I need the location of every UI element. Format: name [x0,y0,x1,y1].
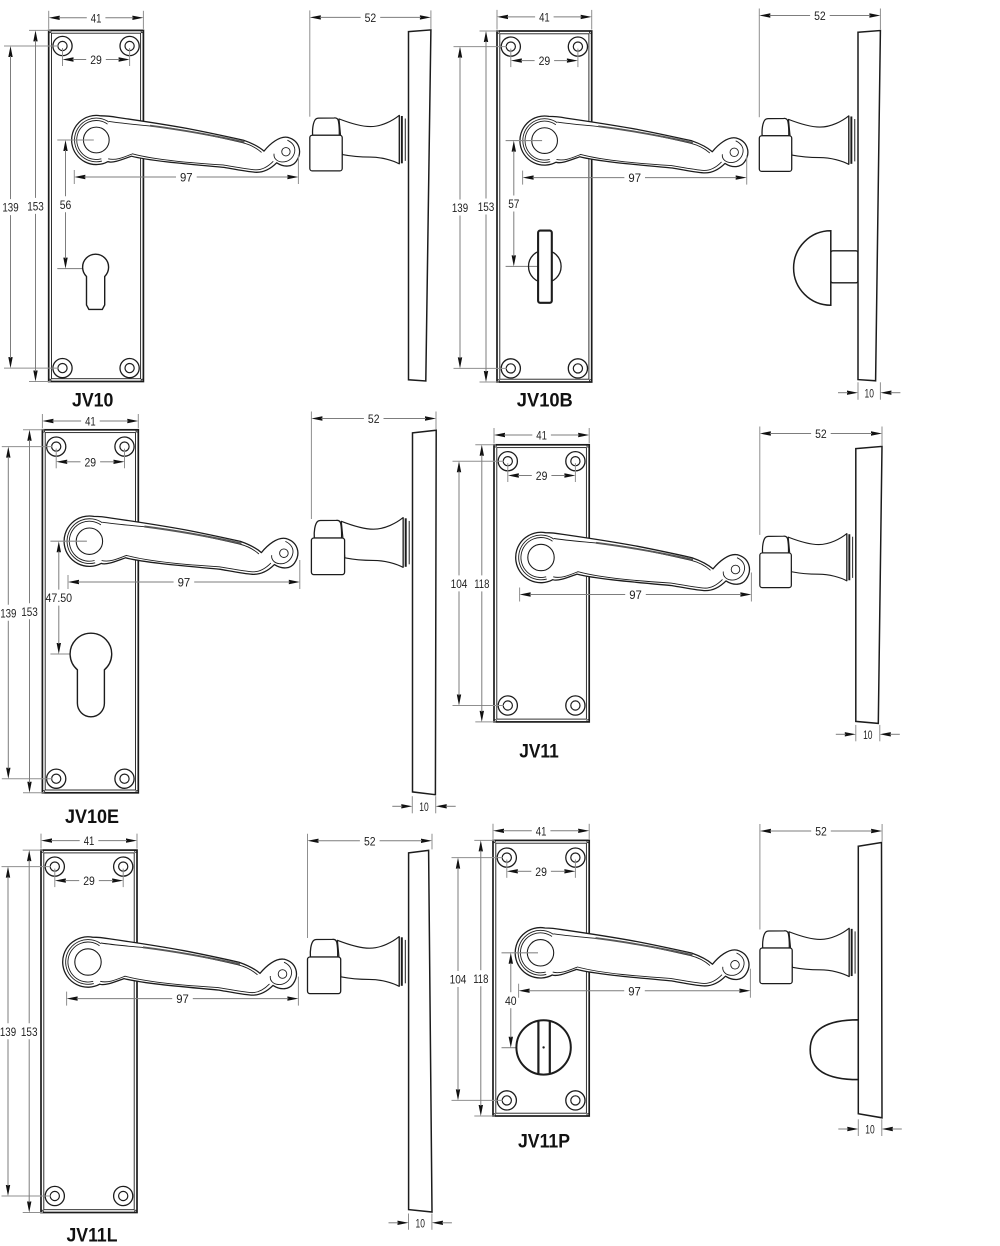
svg-text:97: 97 [178,576,191,590]
svg-text:153: 153 [21,605,38,619]
svg-text:52: 52 [815,427,827,441]
svg-text:97: 97 [176,992,189,1006]
svg-text:41: 41 [539,11,550,25]
svg-text:29: 29 [83,874,95,888]
svg-text:41: 41 [84,834,95,848]
svg-text:41: 41 [536,824,547,838]
svg-text:29: 29 [536,469,548,483]
svg-text:139: 139 [0,1025,16,1039]
svg-text:52: 52 [368,412,380,426]
svg-text:52: 52 [365,11,377,25]
svg-text:JV11L: JV11L [67,1226,118,1246]
svg-text:52: 52 [364,834,376,848]
svg-text:41: 41 [85,415,96,429]
svg-text:JV11P: JV11P [518,1131,570,1152]
svg-text:JV10E: JV10E [65,807,119,828]
svg-text:52: 52 [814,9,826,23]
svg-text:57: 57 [508,197,519,211]
svg-text:29: 29 [90,53,102,67]
svg-text:10: 10 [865,1123,875,1137]
svg-text:10: 10 [419,800,429,814]
svg-text:JV10B: JV10B [517,390,573,411]
svg-text:29: 29 [535,865,547,879]
svg-text:118: 118 [474,577,489,591]
svg-text:10: 10 [416,1216,426,1230]
svg-text:10: 10 [865,386,875,400]
svg-text:JV10: JV10 [72,390,114,411]
svg-text:97: 97 [180,171,193,185]
svg-text:104: 104 [451,577,468,591]
svg-text:47.50: 47.50 [46,591,73,605]
svg-text:29: 29 [539,54,551,68]
svg-text:97: 97 [628,984,641,998]
svg-text:118: 118 [473,972,488,986]
svg-text:104: 104 [450,973,467,987]
svg-text:41: 41 [91,11,102,25]
svg-text:97: 97 [629,588,642,602]
svg-text:139: 139 [0,606,16,620]
svg-text:153: 153 [478,200,495,214]
svg-text:52: 52 [815,825,827,839]
svg-text:153: 153 [21,1025,38,1039]
svg-text:10: 10 [863,728,873,742]
svg-text:139: 139 [452,201,468,215]
svg-text:139: 139 [2,201,18,215]
svg-text:56: 56 [60,198,72,212]
svg-text:97: 97 [628,171,641,185]
svg-text:29: 29 [85,455,97,469]
svg-text:41: 41 [536,429,547,443]
svg-text:JV11: JV11 [519,742,559,763]
svg-text:153: 153 [27,200,44,214]
svg-text:40: 40 [505,994,517,1008]
